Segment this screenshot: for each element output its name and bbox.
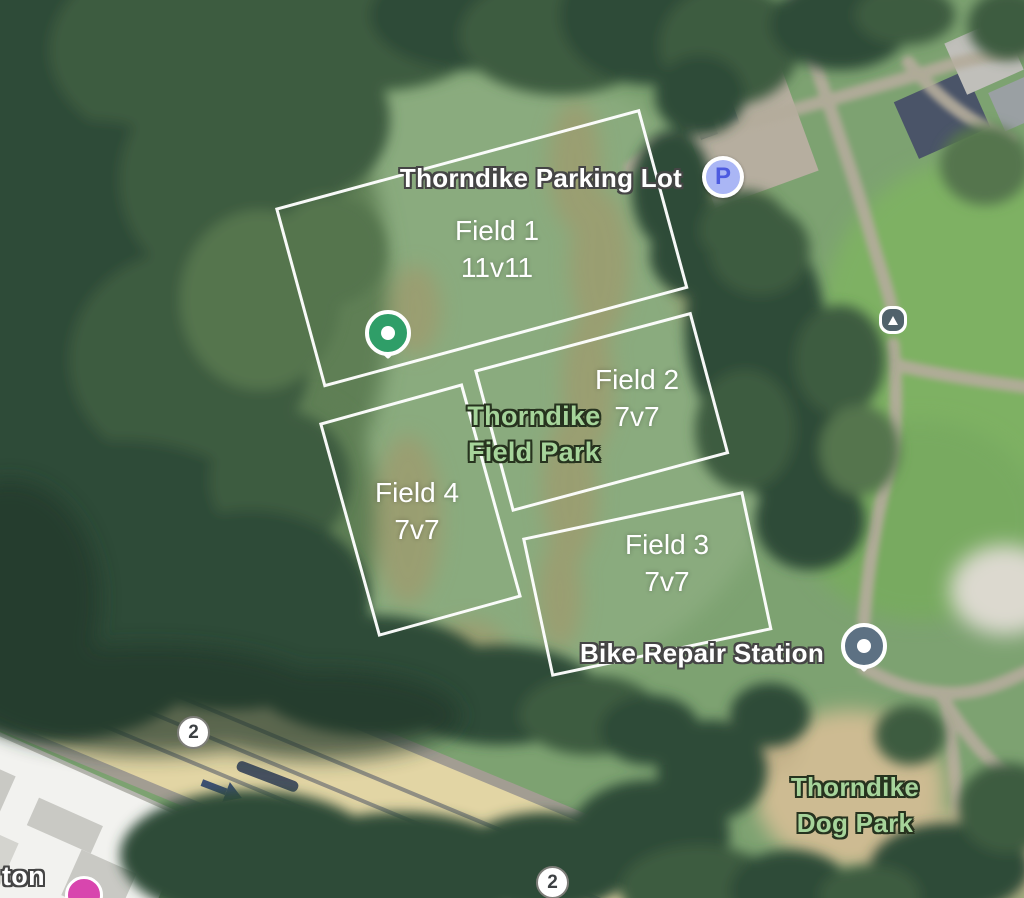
field-park-label-line2: Field Park	[434, 434, 634, 470]
route-2-shield-icon: 2	[536, 866, 569, 898]
field-3-format: 7v7	[567, 563, 767, 600]
dog-park-label-line2: Dog Park	[755, 805, 955, 841]
parking-lot-label[interactable]: Thorndike Parking Lot	[341, 163, 741, 194]
field-4-label[interactable]: Field 4 7v7	[317, 474, 517, 548]
parking-icon-letter: P	[706, 160, 740, 194]
dog-park-label[interactable]: Thorndike Dog Park	[755, 769, 955, 841]
tree-icon	[882, 309, 904, 331]
field-2-name: Field 2	[537, 361, 737, 398]
pin-center-dot	[857, 639, 871, 653]
field-3-label[interactable]: Field 3 7v7	[567, 526, 767, 600]
parking-icon[interactable]: P	[702, 156, 744, 198]
field-4-name: Field 4	[317, 474, 517, 511]
selected-location-pin-icon[interactable]	[365, 310, 411, 368]
pin-center-dot	[381, 326, 395, 340]
field-park-label[interactable]: Thorndike Field Park	[434, 398, 634, 470]
field-1-name: Field 1	[397, 212, 597, 249]
field-1-label[interactable]: Field 1 11v11	[397, 212, 597, 286]
route-2-shield-icon: 2	[177, 716, 210, 749]
park-poi-icon[interactable]	[879, 306, 907, 334]
field-3-name: Field 3	[567, 526, 767, 563]
dog-park-label-line1: Thorndike	[755, 769, 955, 805]
field-park-label-line1: Thorndike	[434, 398, 634, 434]
field-4-format: 7v7	[317, 511, 517, 548]
field-1-format: 11v11	[397, 249, 597, 286]
satellite-map[interactable]: Field 1 11v11 Field 2 7v7 Field 3 7v7 Fi…	[0, 0, 1024, 898]
bike-repair-station-pin-icon[interactable]	[841, 623, 887, 681]
bike-repair-station-label[interactable]: Bike Repair Station	[552, 638, 852, 669]
